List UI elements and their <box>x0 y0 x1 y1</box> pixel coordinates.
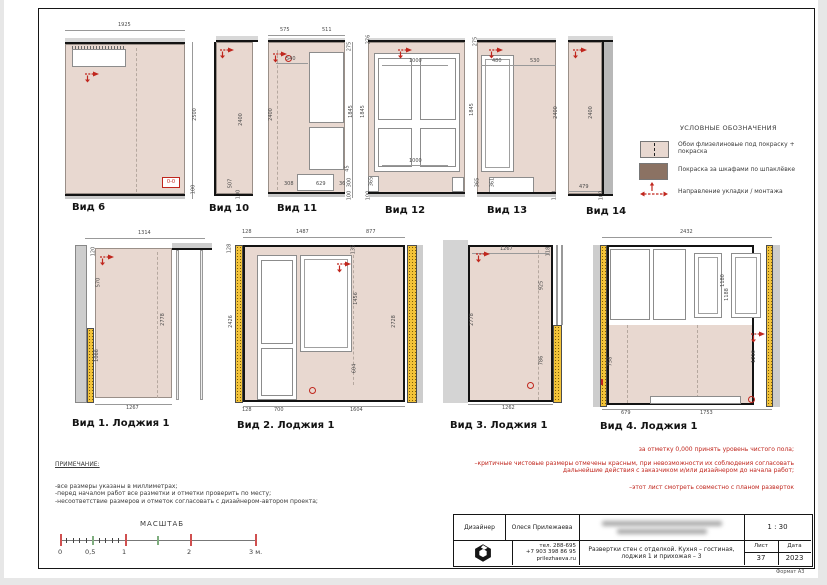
date-label: Дата <box>778 540 811 552</box>
dim-label: 925 <box>539 281 544 291</box>
ac-unit <box>72 49 126 67</box>
dim-label: 118 <box>546 247 551 257</box>
view-title: Вид 14 <box>586 206 626 217</box>
window-pane <box>378 128 412 167</box>
dim-label: 758 <box>608 357 613 367</box>
dim-label: 1456 <box>354 292 359 305</box>
legend-item-label: Направление укладки / монтажа <box>678 188 813 195</box>
view-title: Вид 2. Лоджия 1 <box>237 420 335 431</box>
view-vid-14: 2400 479 100 Вид 14 <box>560 22 622 218</box>
client-info-redacted <box>579 515 744 540</box>
opening <box>481 55 514 172</box>
dim-label: 1314 <box>138 231 151 236</box>
dim-label: 1216 <box>752 350 757 363</box>
window-pane <box>420 128 456 167</box>
red-circle-marker <box>748 396 755 403</box>
red-note-line: –этот лист смотреть совместно с планом р… <box>470 484 794 491</box>
drawing-sheet: 1925 0-0 2500 100 Вид 6 2400 507 100 Вид… <box>0 0 827 585</box>
drawing-scale: 1 : 30 <box>744 515 811 540</box>
dim-label: 1267 <box>500 247 513 252</box>
dim-label: 1000 <box>409 59 422 64</box>
view-title: Вид 1. Лоджия 1 <box>72 418 170 429</box>
legend-item-label: Покраска за шкафами по шпаклёвке <box>678 166 813 173</box>
dim-label: 2432 <box>680 230 693 235</box>
dim-label: 1180 <box>721 274 726 287</box>
notes-block: ПРИМЕЧАНИЕ: -все размеры указаны в милли… <box>55 461 365 505</box>
dim-label: 100 <box>347 191 352 201</box>
website: prilezhaeva.ru <box>537 556 576 563</box>
dim-label: 128 <box>227 244 232 254</box>
dim-label: 128 <box>242 408 252 413</box>
view-title: Вид 3. Лоджия 1 <box>450 420 548 431</box>
sheet-number-label: Лист <box>744 540 778 552</box>
dim-label: 1066 <box>95 349 100 362</box>
door-pane <box>261 260 293 344</box>
direction-legend-icon <box>640 182 668 200</box>
date-value: 2023 <box>778 552 811 565</box>
dim-label: 2778 <box>470 313 475 326</box>
dim-label: 1262 <box>502 406 515 411</box>
designer-name: Олеся Прилежаева <box>505 515 579 540</box>
red-level-tick <box>601 379 603 385</box>
view-title: Вид 4. Лоджия 1 <box>600 421 698 432</box>
dim-label: 479 <box>579 185 589 190</box>
glazing-post <box>561 245 563 325</box>
red-circle-marker <box>309 387 316 394</box>
dim-label: 2778 <box>161 313 166 326</box>
dim-label: 507 <box>228 179 233 189</box>
dim-label: 308 <box>284 182 294 187</box>
scale-bar: МАСШТАБ 0 0,5 1 2 3 м. <box>55 520 295 560</box>
dim-label: 2728 <box>392 315 397 328</box>
dim-label: 128 <box>242 230 252 235</box>
dim-label: 365 <box>475 178 480 188</box>
niche <box>452 177 464 192</box>
layout-direction-icon <box>84 70 100 83</box>
dim-label: 604 <box>352 364 357 374</box>
dim-label: 275 <box>473 37 478 47</box>
view-vid-2-lodzhiya-1: 128 1487 877 128 2426 135 1456 604 2728 … <box>226 228 431 430</box>
dim-label: 2400 <box>554 106 559 119</box>
scale-tick-label: 0,5 <box>85 548 95 556</box>
dim-label: 2500 <box>193 108 198 121</box>
format-label: Формат А3 <box>776 569 804 575</box>
cabinet-front <box>653 249 686 320</box>
dim-label: 100 <box>191 185 196 195</box>
glazing-post <box>176 250 179 400</box>
cabinet-front <box>694 253 722 318</box>
legend-swatch-wallpaper <box>640 141 669 158</box>
view-title: Вид 6 <box>72 202 105 213</box>
red-notes: за отметку 0,000 принять уровень чистого… <box>470 446 794 498</box>
dim-label: 276 <box>366 35 371 45</box>
view-vid-12: 276 1000 1845 1000 365 100 Вид 12 <box>362 14 472 218</box>
dim-label: 275 <box>347 42 352 52</box>
dim-label: 2426 <box>229 315 234 328</box>
dim-label: 1845 <box>470 103 475 116</box>
scale-tick-label: 2 <box>187 548 191 556</box>
scale-title: МАСШТАБ <box>140 520 184 528</box>
dim-label: 365 <box>369 177 374 187</box>
dim-label: 1845 <box>349 105 354 118</box>
title-block: Дизайнер Олеся Прилежаева 1 : 30 тел. 28… <box>453 514 813 567</box>
dim-label: 1487 <box>296 230 309 235</box>
scale-tick-label: 0 <box>58 548 62 556</box>
layout-direction-icon <box>99 253 115 266</box>
dim-label: 2400 <box>239 113 244 126</box>
scale-tick-label: 3 м. <box>249 548 262 556</box>
cabinet-front <box>731 253 761 318</box>
layout-direction-icon <box>475 250 491 263</box>
dim-label: 786 <box>539 356 544 366</box>
note-line: -несоответствие размеров и отметок согла… <box>55 498 365 506</box>
layout-direction-icon <box>750 330 766 343</box>
layout-direction-icon <box>219 46 235 59</box>
dim-label: 575 <box>280 28 290 33</box>
dim-label: 1267 <box>126 406 139 411</box>
view-title: Вид 11 <box>277 203 317 214</box>
red-note-line: за отметку 0,000 принять уровень чистого… <box>470 446 794 453</box>
dim-label: 36 <box>339 182 345 187</box>
designer-contacts: тел. 288-695 +7 903 398 86 95 prilezhaev… <box>512 540 579 565</box>
note-line: -все размеры указаны в миллиметрах; <box>55 483 365 491</box>
view-vid-10: 2400 507 100 Вид 10 <box>205 22 260 218</box>
insulation <box>553 325 562 403</box>
door-pane <box>261 348 293 396</box>
dim-label: 540 <box>286 57 296 62</box>
view-vid-6: 1925 0-0 2500 100 Вид 6 <box>58 22 208 218</box>
glazing-post <box>556 245 558 325</box>
dim-label: 2400 <box>589 106 594 119</box>
dim-label: 1188 <box>725 288 730 301</box>
dim-label: 2400 <box>269 108 274 121</box>
dim-label: 1753 <box>700 411 713 416</box>
red-circle-marker <box>527 382 534 389</box>
layout-direction-icon <box>572 46 588 59</box>
insulation <box>407 245 417 403</box>
designer-logo <box>454 540 512 565</box>
opening <box>309 127 344 170</box>
cabinet-front <box>610 249 650 320</box>
red-note-line: –критичные чистовые размеры отмечены кра… <box>470 460 794 474</box>
glazing-post <box>200 250 203 400</box>
view-vid-1-lodzhiya-1: 1314 120 570 1066 2778 1267 Вид 1. Лоджи… <box>58 228 238 430</box>
view-vid-11: 575 511 540 2400 275 1845 45 300 100 308… <box>260 14 360 218</box>
insulation <box>766 245 773 407</box>
dim-label: 530 <box>530 59 540 64</box>
dim-label: 480 <box>492 59 502 64</box>
view-title: Вид 13 <box>487 205 527 216</box>
elevation-badge: 0-0 <box>162 177 180 188</box>
window-pane <box>378 58 412 120</box>
dim-label: 629 <box>316 182 326 187</box>
dim-label: 120 <box>91 247 96 257</box>
dim-label: 511 <box>322 28 332 33</box>
view-title: Вид 12 <box>385 205 425 216</box>
dim-label: 877 <box>366 230 376 235</box>
dim-label: 361 <box>490 178 495 188</box>
designer-label: Дизайнер <box>454 515 505 540</box>
view-vid-4-lodzhiya-1: 2432 1180 1188 758 1216 679 1753 Вид 4. … <box>588 226 793 432</box>
dim-label: 679 <box>621 411 631 416</box>
dim-label: 135 <box>351 245 356 255</box>
scale-tick-label: 1 <box>122 548 126 556</box>
opening <box>309 52 344 123</box>
window-pane <box>420 58 456 120</box>
legend-title: УСЛОВНЫЕ ОБОЗНАЧЕНИЯ <box>680 124 777 132</box>
dim-label: 300 <box>347 178 352 188</box>
floor-notch <box>650 396 741 404</box>
dim-label: 1604 <box>350 408 363 413</box>
dim-label: 1000 <box>409 159 422 164</box>
view-title: Вид 10 <box>209 203 249 214</box>
legend-item-label: Обои флизелиновые под покраску + покраск… <box>678 141 813 155</box>
legend-swatch-paint <box>639 163 668 180</box>
sheet-title: Развертки стен с отделкой. Кухня – гости… <box>579 540 744 565</box>
note-line: -перед началом работ все разметки и отме… <box>55 490 365 498</box>
dim-label: 700 <box>274 408 284 413</box>
legend: УСЛОВНЫЕ ОБОЗНАЧЕНИЯ Обои флизелиновые п… <box>630 118 815 213</box>
dim-label: 45 <box>346 165 351 171</box>
dim-label: 1925 <box>118 23 131 28</box>
layout-direction-icon <box>336 260 352 273</box>
notes-title: ПРИМЕЧАНИЕ: <box>55 461 365 469</box>
insulation <box>87 328 94 403</box>
sheet-number-value: 37 <box>744 552 778 565</box>
view-vid-3-lodzhiya-1: 1267 118 2778 925 786 1262 Вид 3. Лоджия… <box>436 228 576 430</box>
view-vid-13: 480 530 275 1845 2400 365 361 100 Вид 13 <box>470 14 570 218</box>
insulation <box>235 245 243 403</box>
dim-label: 570 <box>96 278 101 288</box>
dim-label: 1845 <box>361 105 366 118</box>
